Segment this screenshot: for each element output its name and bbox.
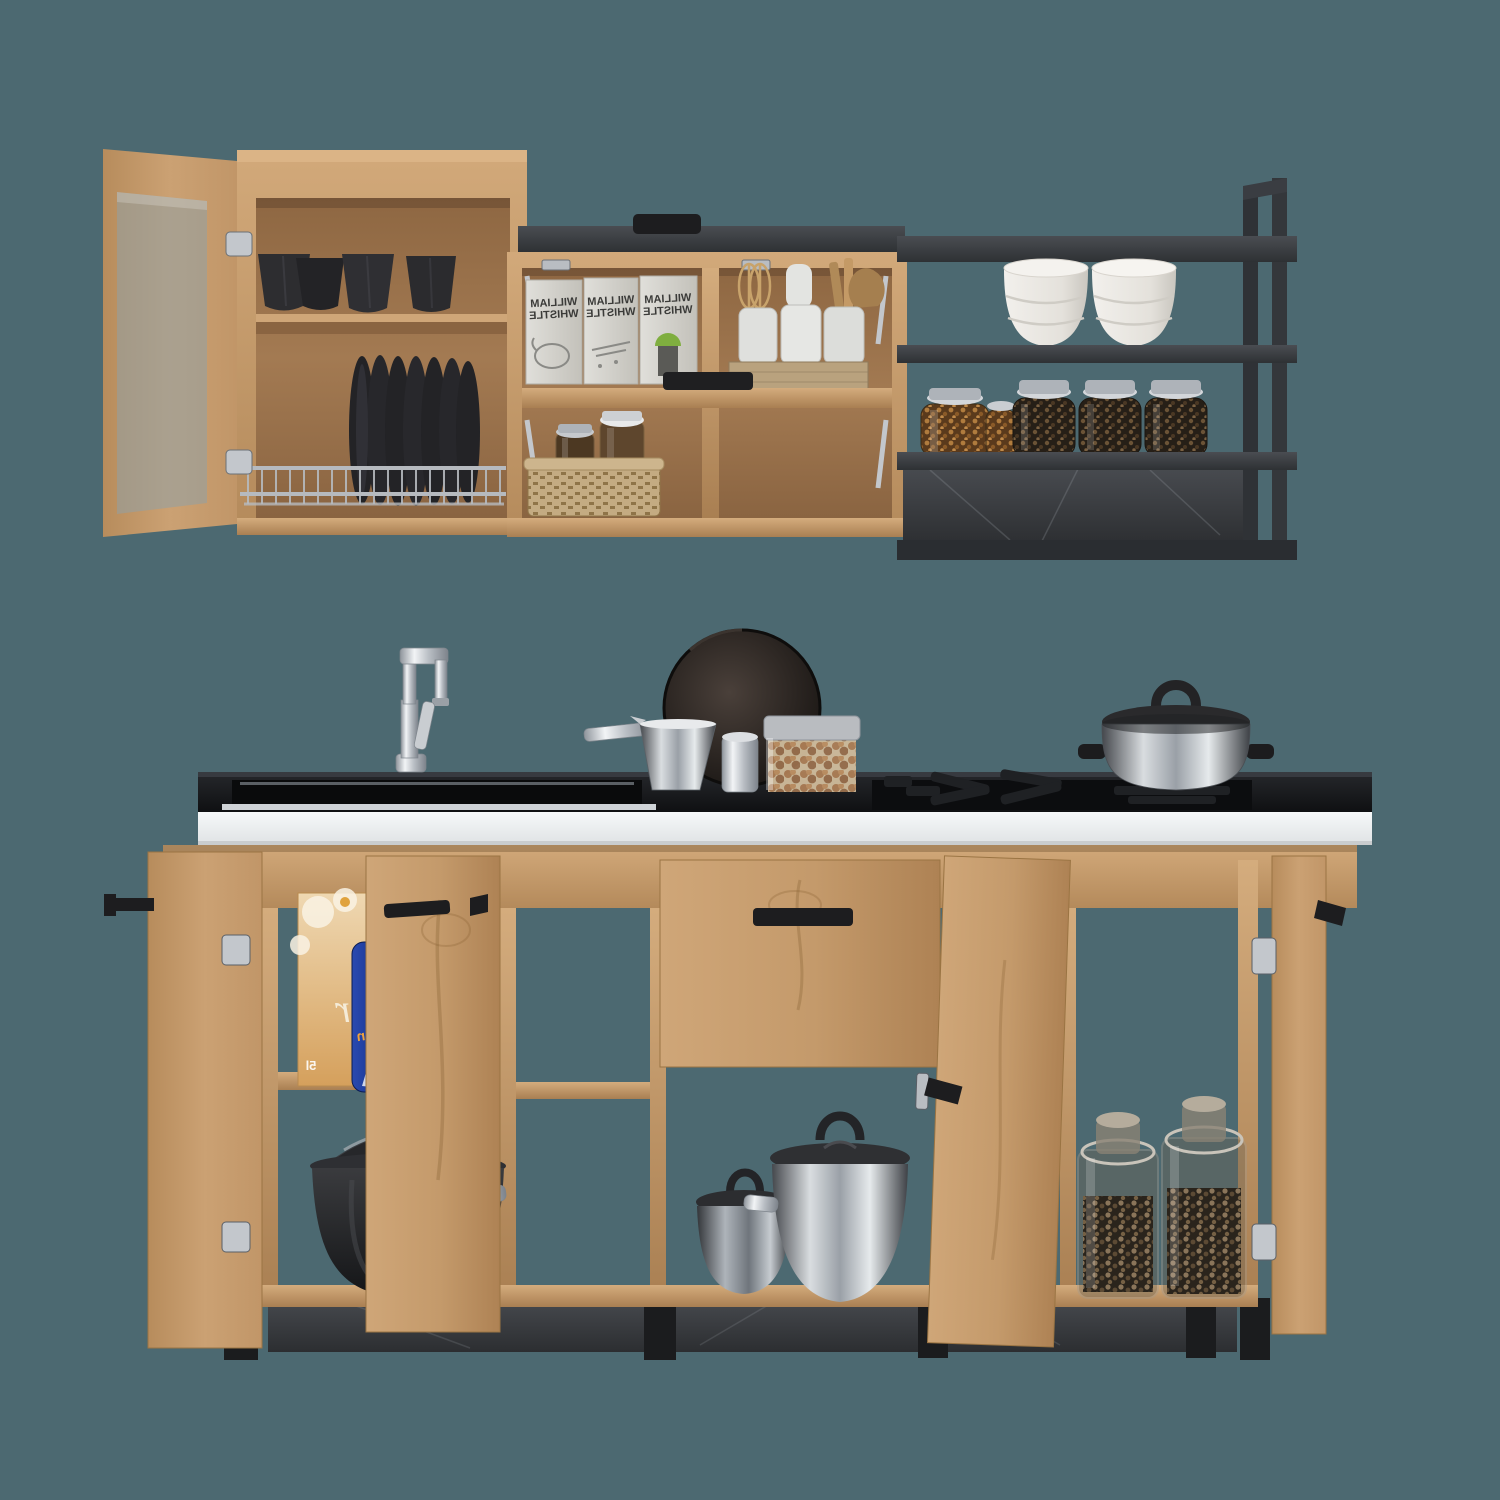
glass-door-open (103, 149, 252, 537)
hinge (1252, 1224, 1276, 1260)
center-drawer-front (660, 860, 940, 1067)
cabinet-top-edge (237, 150, 527, 162)
steel-canister (722, 732, 758, 792)
jar-dark (1013, 380, 1075, 456)
shelf-rail-top (897, 236, 1297, 262)
flip-door-handle (663, 372, 753, 390)
kitchen-set-product-render: WILLIAM WHISTLE WILLIAM WHISTLE WILLIAM … (0, 0, 1500, 1500)
jar-amber-small (986, 401, 1016, 456)
shelf-edge (256, 314, 510, 322)
counter-white-band (198, 812, 1372, 845)
hinge (542, 260, 570, 270)
side-panel-left (262, 908, 278, 1304)
shelf-rail-middle (897, 345, 1297, 363)
door-second-open (366, 856, 500, 1332)
food-storage-container (764, 716, 860, 792)
cereal-box: WILLIAM WHISTLE (526, 280, 582, 384)
flip-up-door-open (518, 226, 905, 252)
cereal-boxes: WILLIAM WHISTLE WILLIAM WHISTLE WILLIAM … (526, 276, 697, 384)
ceramic-jar (739, 308, 777, 364)
hinge (222, 935, 250, 965)
wall-cabinet-middle: WILLIAM WHISTLE WILLIAM WHISTLE WILLIAM … (507, 214, 907, 537)
jar-dark (1145, 380, 1207, 456)
svg-text:5l: 5l (306, 1058, 317, 1073)
jar-dark (1079, 380, 1141, 456)
shelf-shadow (256, 322, 510, 334)
partition (500, 908, 516, 1304)
wicker-basket (524, 458, 664, 516)
hinge (222, 1222, 250, 1252)
cereal-box: WILLIAM WHISTLE (584, 278, 638, 384)
shelf-rail-lower (897, 452, 1297, 470)
drawer-handle (753, 908, 853, 926)
hinge (1252, 938, 1276, 974)
cabinet-bottom-edge (237, 518, 527, 535)
glass-pane (117, 192, 207, 514)
hinge (226, 232, 252, 256)
wall-cabinet-left (103, 149, 527, 537)
plate-rack-plates (349, 355, 480, 506)
door-handle (633, 214, 701, 234)
shelf (516, 1082, 650, 1099)
cereal-box: WILLIAM WHISTLE (640, 276, 697, 384)
ceramic-jar (824, 307, 864, 364)
jar-amber (921, 388, 989, 456)
cabinet-bottom-edge (507, 518, 907, 537)
spatula-icon (786, 264, 812, 308)
black-cups (258, 254, 456, 313)
sink (222, 780, 656, 810)
ceramic-jar (781, 305, 821, 364)
hinge (226, 450, 252, 474)
mid-rail (522, 388, 892, 408)
spice-jars (921, 380, 1207, 456)
shelf-rail-bottom (897, 540, 1297, 560)
